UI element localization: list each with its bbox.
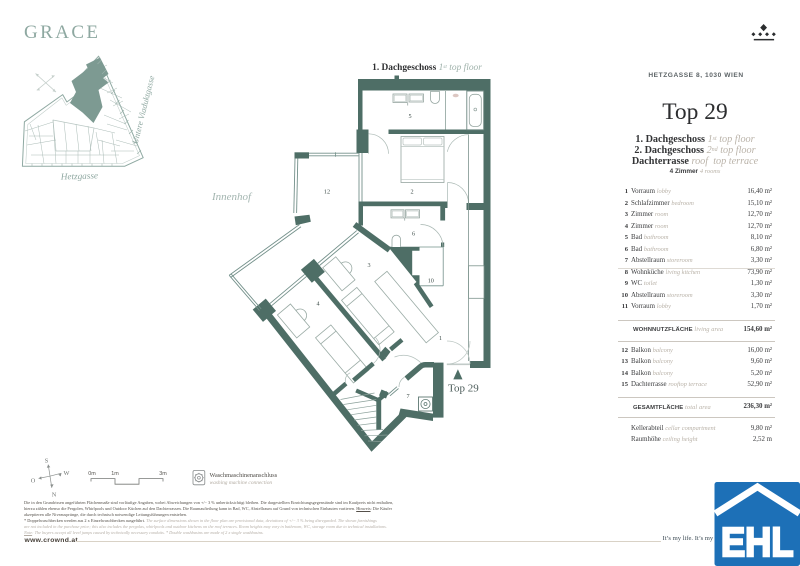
svg-text:Untere Viaduktgasse: Untere Viaduktgasse xyxy=(130,74,157,145)
svg-text:W: W xyxy=(64,470,70,477)
svg-text:12: 12 xyxy=(324,189,330,196)
svg-text:1m: 1m xyxy=(111,471,119,477)
svg-text:S: S xyxy=(45,458,49,465)
svg-text:O: O xyxy=(31,478,36,485)
svg-text:4: 4 xyxy=(316,301,319,308)
svg-text:EHL: EHL xyxy=(721,519,794,565)
svg-text:5: 5 xyxy=(408,113,411,120)
svg-text:2: 2 xyxy=(410,189,413,196)
svg-text:0m: 0m xyxy=(88,471,96,477)
svg-text:10: 10 xyxy=(428,278,434,285)
svg-text:Top 29: Top 29 xyxy=(448,383,479,395)
svg-text:3: 3 xyxy=(367,262,370,269)
svg-text:Hetzgasse: Hetzgasse xyxy=(60,170,99,181)
svg-text:6: 6 xyxy=(412,231,415,238)
svg-text:1: 1 xyxy=(439,335,442,342)
svg-text:3m: 3m xyxy=(159,471,167,477)
svg-text:N: N xyxy=(52,492,57,499)
svg-text:7: 7 xyxy=(406,393,409,400)
